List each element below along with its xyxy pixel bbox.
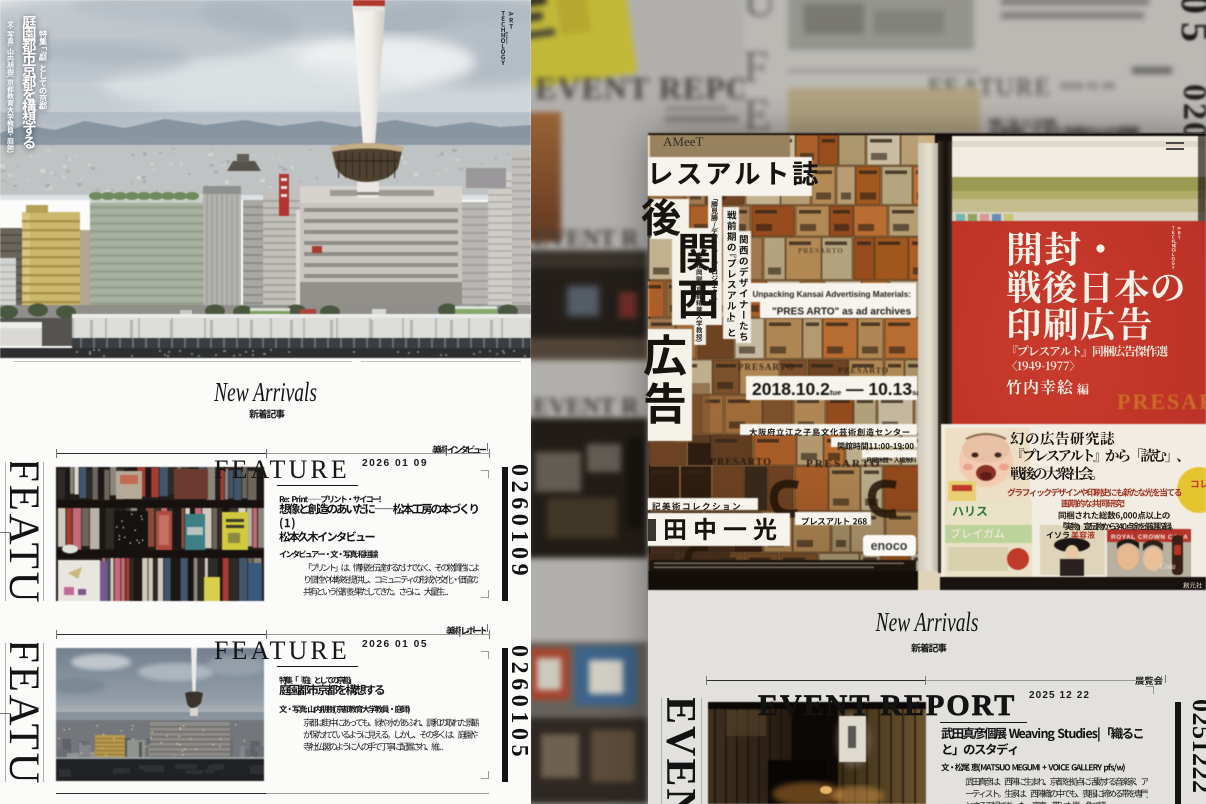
svg-text:enoco: enoco bbox=[871, 539, 908, 553]
svg-text:Unpacking Kansai Advertising M: Unpacking Kansai Advertising Materials: bbox=[753, 290, 912, 299]
svg-text:0260109: 0260109 bbox=[509, 464, 531, 580]
svg-text:0251222: 0251222 bbox=[1187, 699, 1206, 794]
svg-text:0260105: 0260105 bbox=[509, 645, 531, 761]
svg-text:EVENT: EVENT bbox=[660, 698, 700, 804]
svg-text:"PRES ARTO" as ad archives: "PRES ARTO" as ad archives bbox=[772, 307, 911, 318]
svg-text:PRESARTO: PRESARTO bbox=[1117, 389, 1206, 414]
svg-text:Cola: Cola bbox=[1160, 562, 1176, 571]
svg-text:FEATURE: FEATURE bbox=[4, 643, 44, 783]
svg-text:FEATURE: FEATURE bbox=[4, 462, 44, 602]
